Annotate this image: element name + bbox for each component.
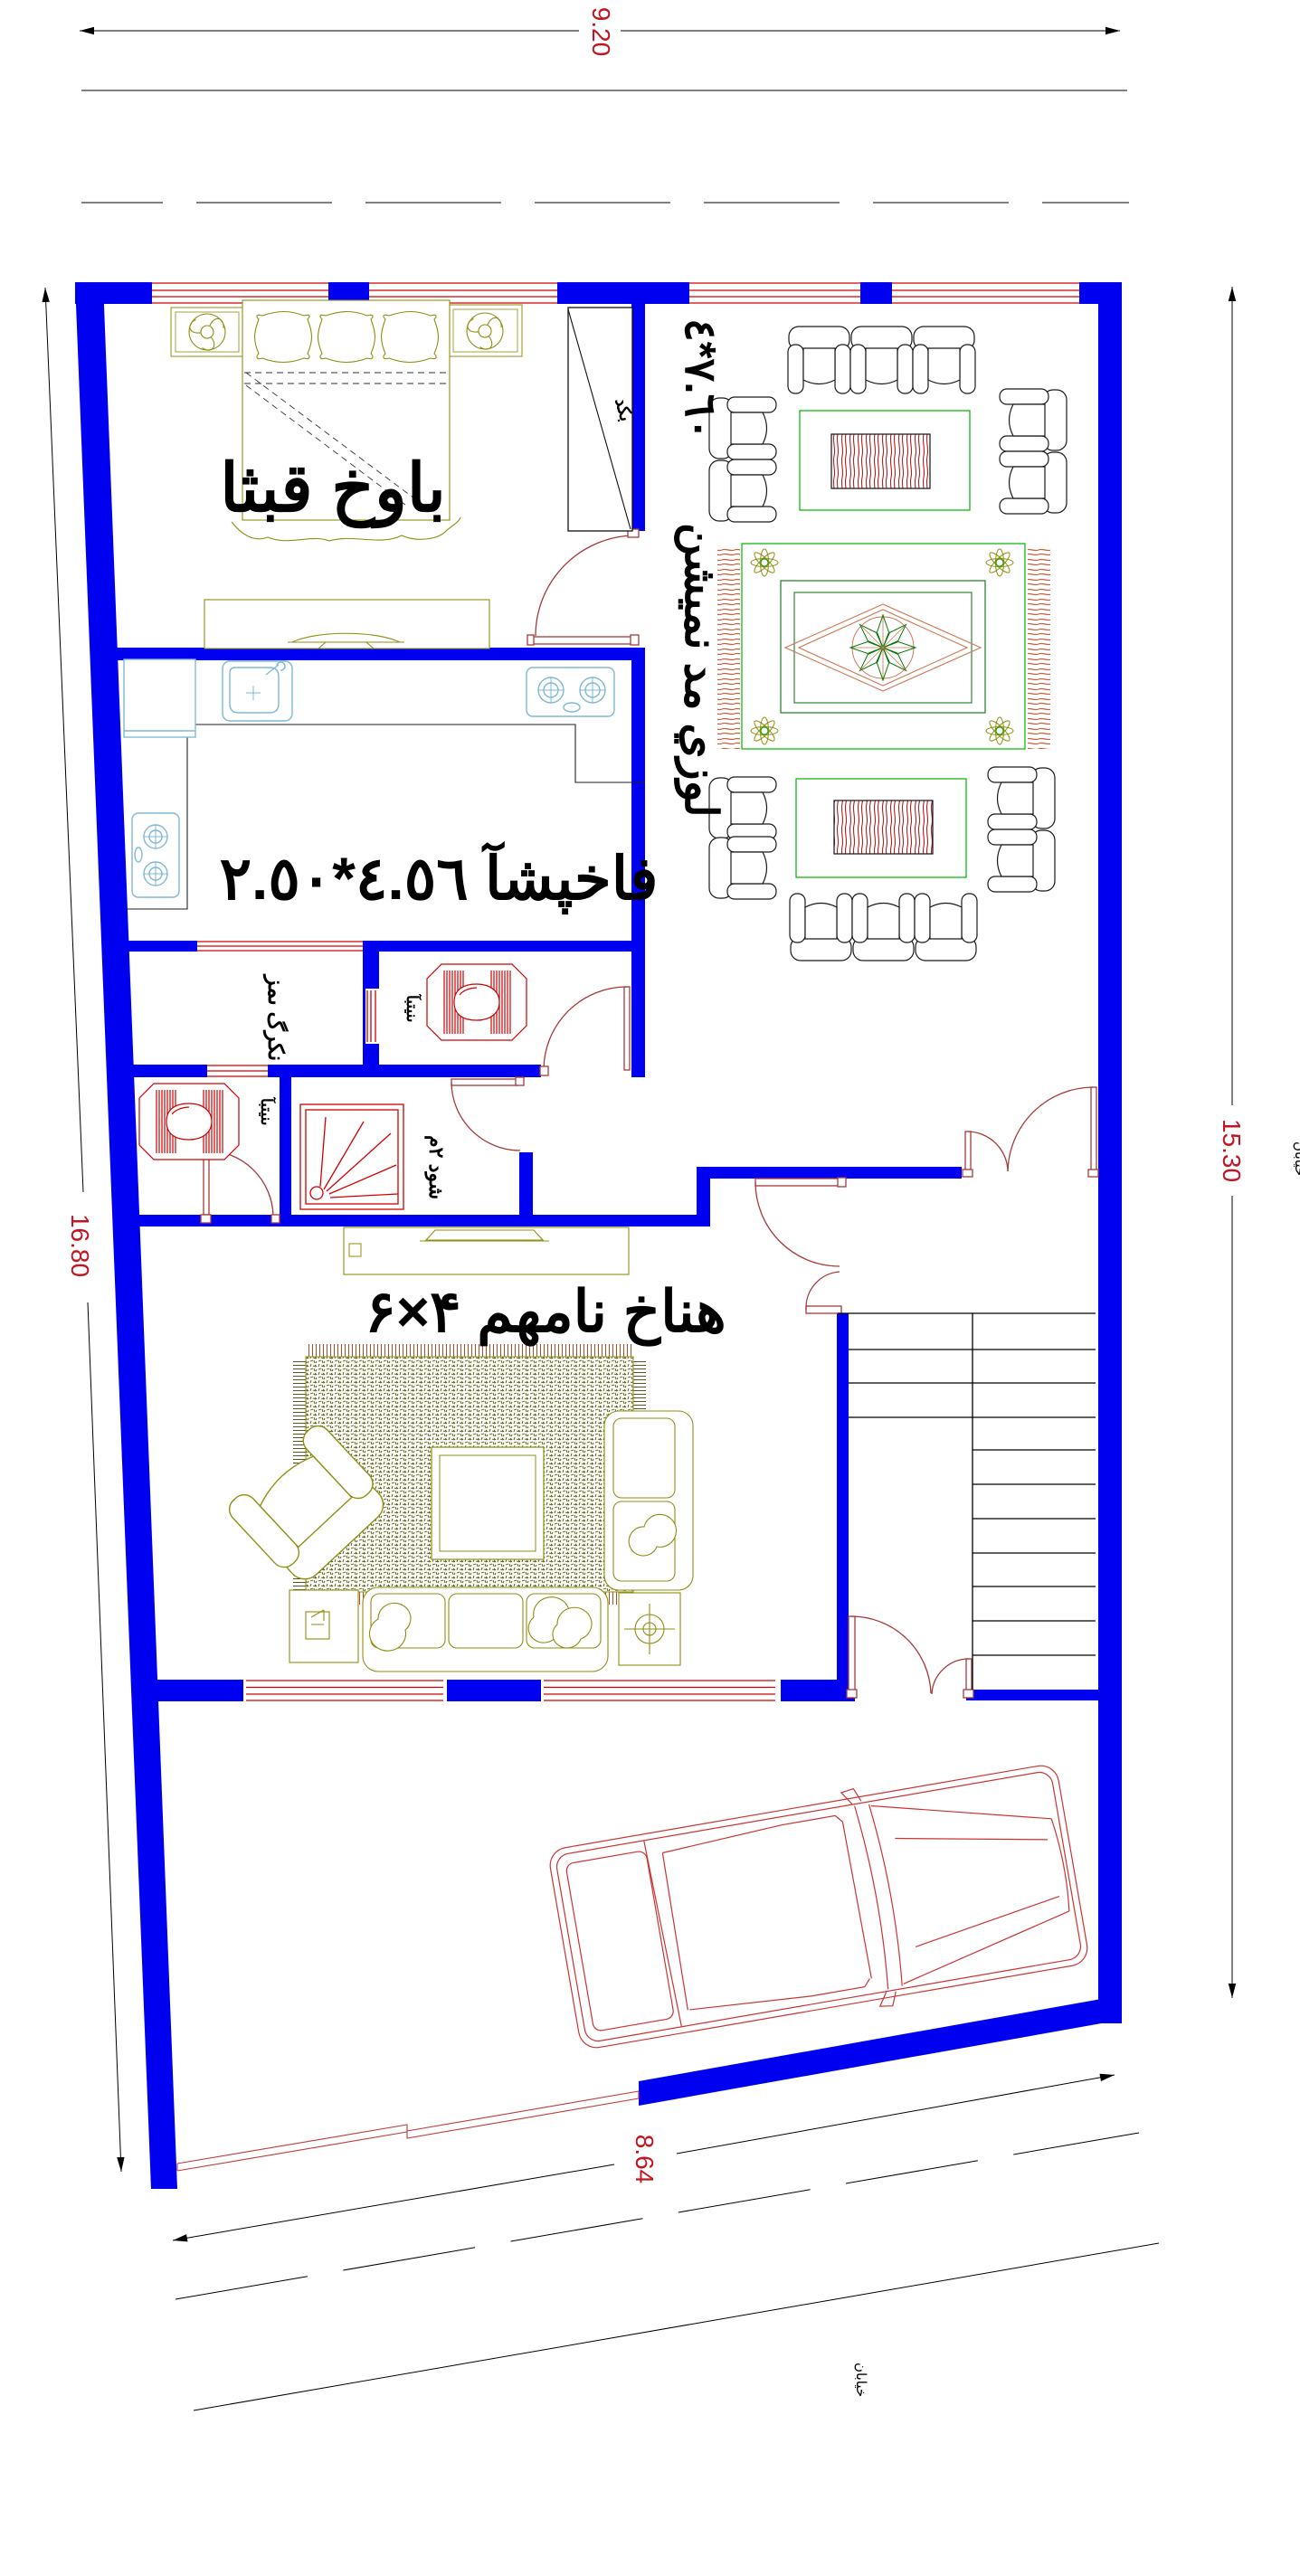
svg-text:16.80: 16.80	[66, 1214, 94, 1277]
svg-text:15.30: 15.30	[1218, 1119, 1246, 1182]
svg-text:باوخ قبثا: باوخ قبثا	[220, 450, 446, 529]
svg-text:شود ٢م: شود ٢م	[424, 1135, 448, 1199]
svg-text:فاخپشآ ٤.٥٦*٢.٥٠: فاخپشآ ٤.٥٦*٢.٥٠	[220, 840, 659, 915]
svg-text:8.64: 8.64	[631, 2135, 659, 2184]
svg-text:ىنيتبآ: ىنيتبآ	[403, 994, 422, 1022]
svg-text:9.20: 9.20	[587, 7, 615, 57]
svg-text:ىنيتبآ: ىنيتبآ	[258, 1097, 277, 1125]
svg-text:خيابان: خيابان	[1292, 1141, 1300, 1176]
svg-text:خيابان: خيابان	[853, 2363, 868, 2397]
svg-text:۶×۴ هناخ نامهم: ۶×۴ هناخ نامهم	[365, 1279, 726, 1347]
svg-text:لوزي مد نميشن: لوزي مد نميشن	[674, 523, 726, 818]
svg-text:نكرگ ىمز: نكرگ ىمز	[262, 973, 289, 1061]
svg-text:٧.٦٠*٤: ٧.٦٠*٤	[676, 318, 724, 440]
